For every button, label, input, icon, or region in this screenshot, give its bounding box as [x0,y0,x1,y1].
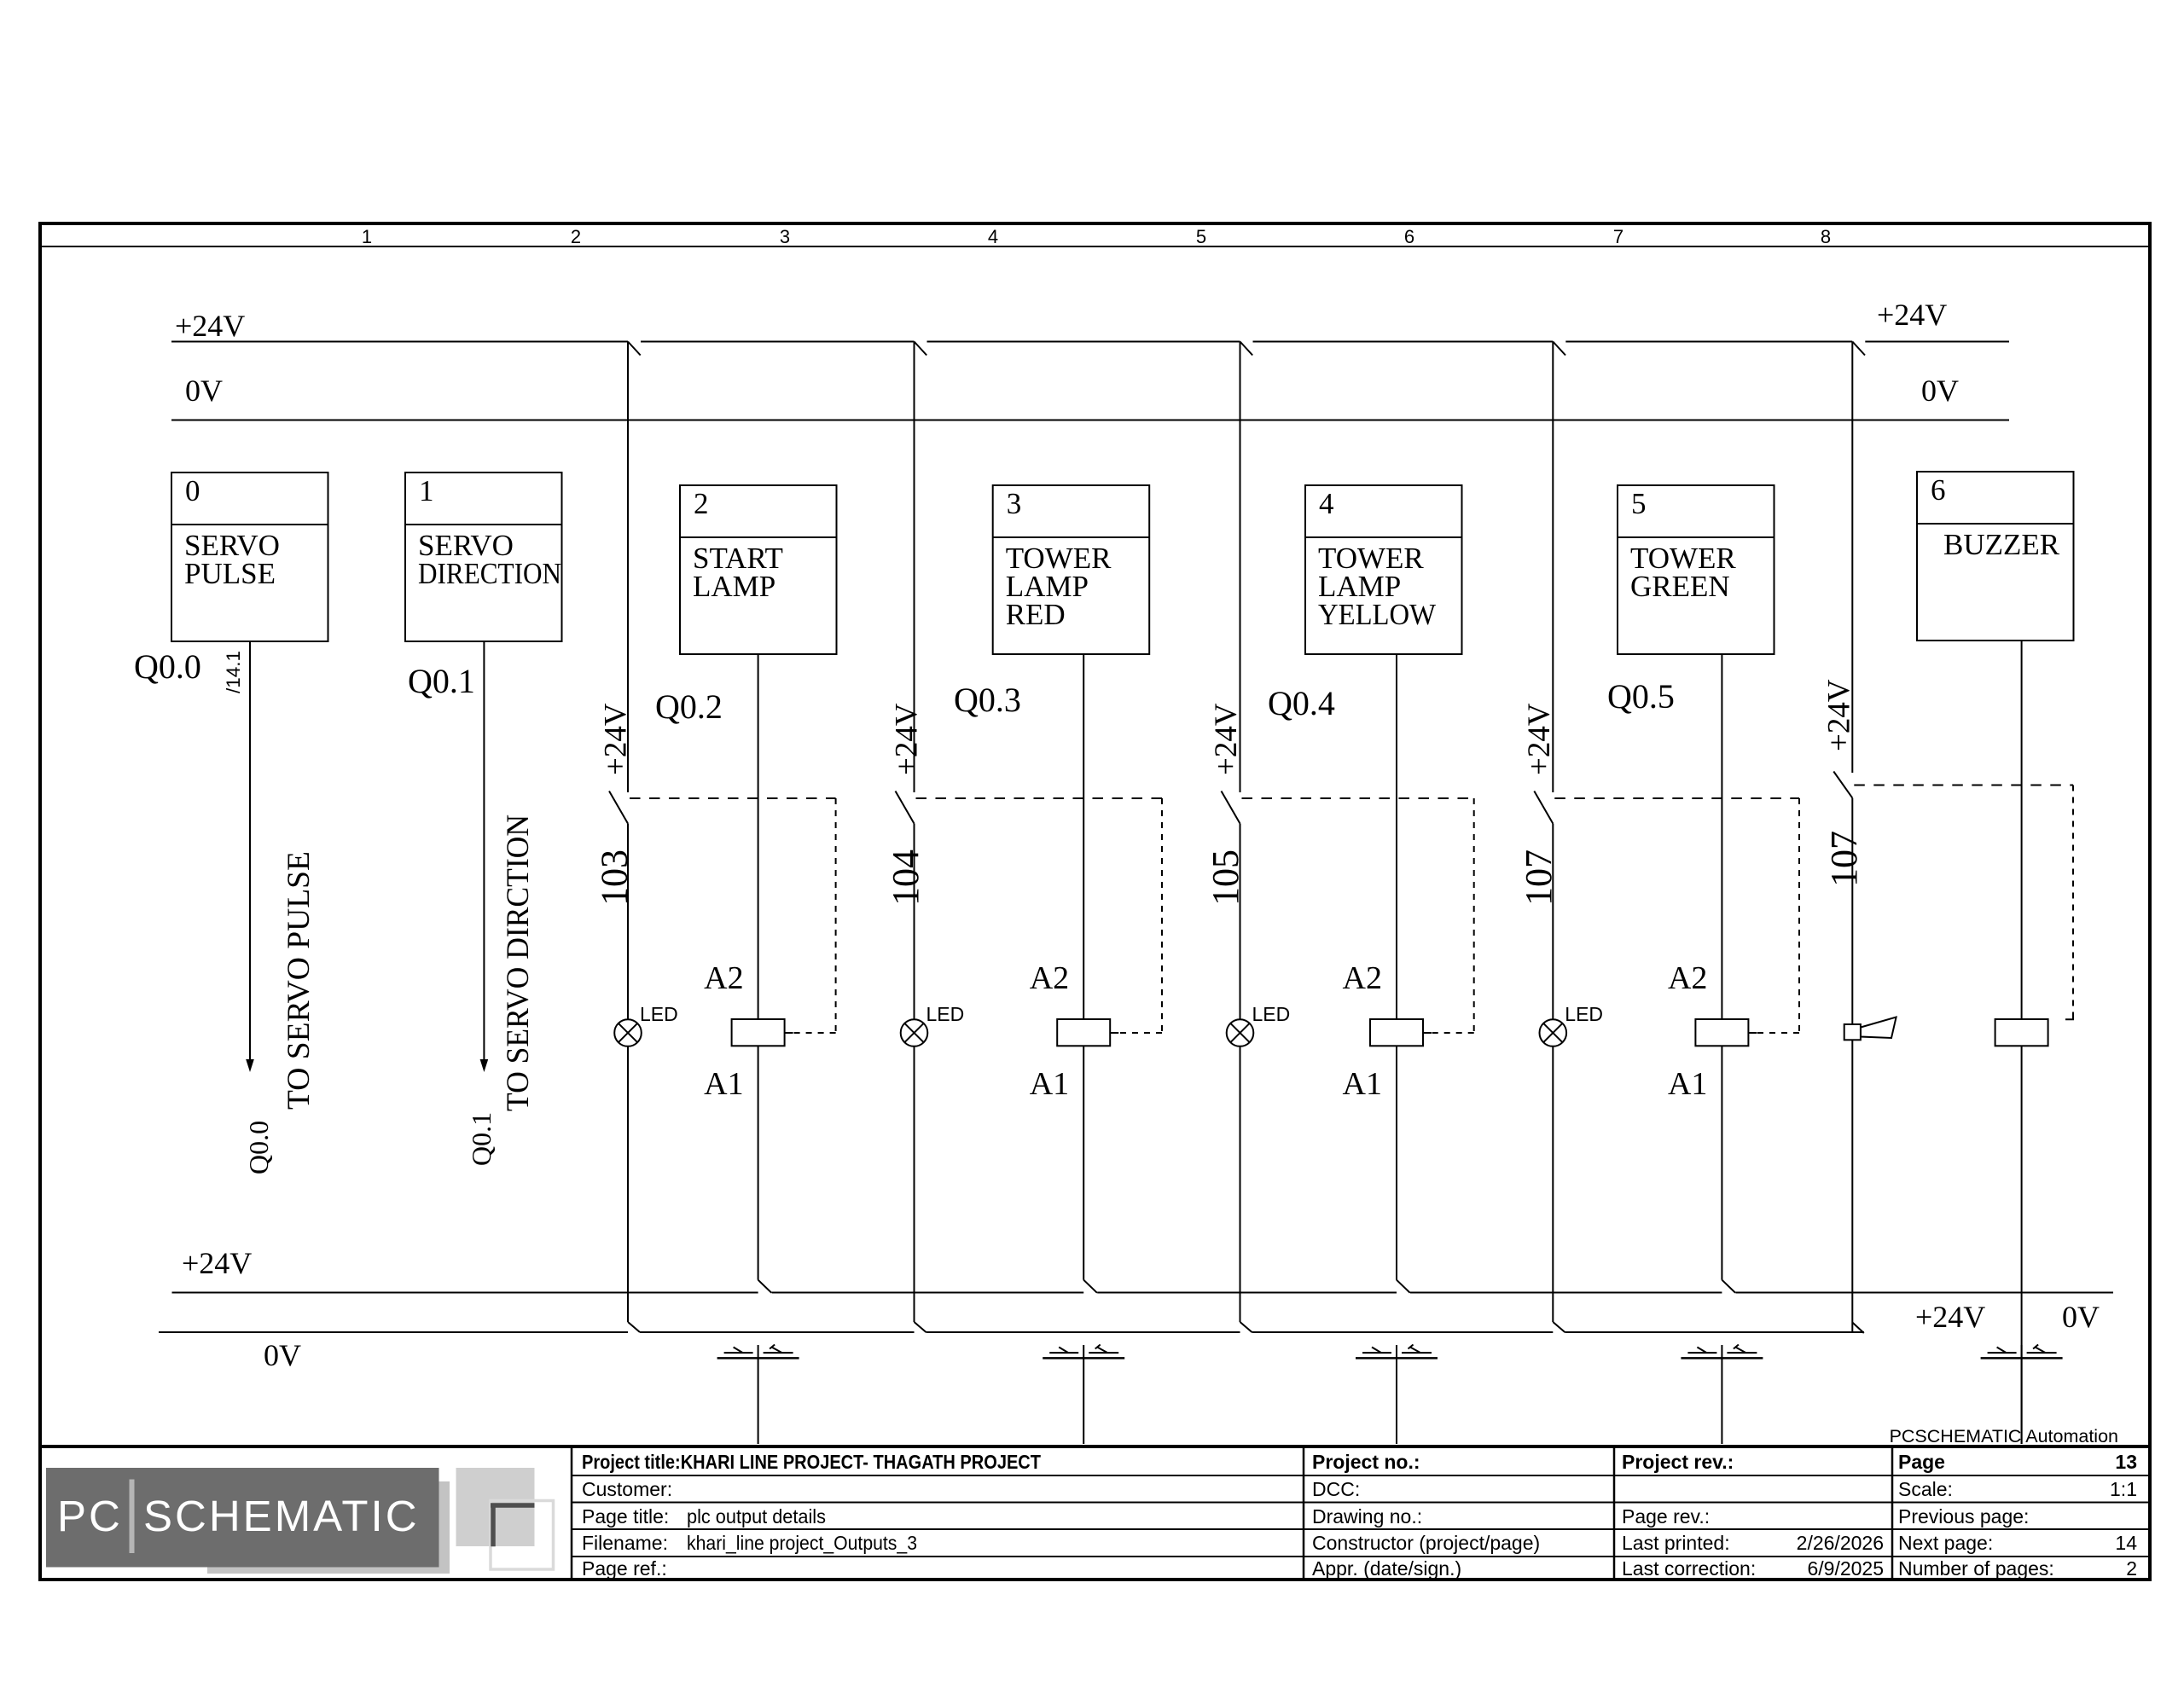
svg-text:/14.1: /14.1 [223,651,244,693]
svg-text:3: 3 [1007,487,1022,520]
svg-text:DCC:: DCC: [1312,1478,1360,1500]
svg-text:PCSCHEMATIC Automation: PCSCHEMATIC Automation [1890,1426,2118,1446]
svg-text:LED: LED [640,1003,678,1025]
svg-text:107: 107 [1823,831,1865,887]
svg-text:1: 1 [362,226,372,247]
svg-text:14: 14 [2115,1532,2137,1554]
svg-text:6: 6 [1931,473,1946,507]
svg-text:0V: 0V [264,1338,301,1372]
svg-text:Q0.4: Q0.4 [1268,684,1335,722]
svg-text:4: 4 [988,226,998,247]
svg-text:+24V: +24V [1209,703,1244,775]
svg-text:13: 13 [2115,1451,2137,1473]
svg-text:5: 5 [1631,487,1647,520]
svg-text:2: 2 [694,487,709,520]
svg-text:RED: RED [1006,598,1066,631]
svg-text:Q0.1: Q0.1 [408,662,475,700]
svg-text:TO SERVO DIRCTION: TO SERVO DIRCTION [501,815,536,1111]
svg-text:PULSE: PULSE [184,557,276,590]
svg-text:Q0.0: Q0.0 [243,1121,274,1174]
svg-text:A1: A1 [704,1066,743,1102]
svg-text:6: 6 [1404,226,1414,247]
svg-text:SCHEMATIC: SCHEMATIC [143,1492,420,1540]
svg-text:Page ref.:: Page ref.: [582,1557,667,1580]
svg-text:A1: A1 [1343,1066,1382,1102]
svg-text:Q0.2: Q0.2 [655,687,723,726]
svg-text:Scale:: Scale: [1898,1478,1953,1500]
svg-text:A1: A1 [1030,1066,1069,1102]
svg-text:2/26/2026: 2/26/2026 [1797,1532,1884,1554]
svg-text:plc output details: plc output details [687,1505,826,1528]
svg-text:DIRECTION: DIRECTION [418,557,561,590]
svg-text:1:1: 1:1 [2110,1478,2137,1500]
svg-text:Previous page:: Previous page: [1898,1505,2029,1528]
svg-text:Q0.5: Q0.5 [1607,677,1675,716]
svg-text:Appr. (date/sign.): Appr. (date/sign.) [1312,1557,1461,1580]
svg-text:0V: 0V [185,374,223,408]
svg-text:Constructor (project/page): Constructor (project/page) [1312,1532,1540,1554]
svg-text:107: 107 [1518,849,1560,906]
svg-text:Project rev.:: Project rev.: [1622,1451,1734,1473]
svg-text:Number of pages:: Number of pages: [1898,1557,2054,1580]
svg-text:104: 104 [885,849,926,906]
svg-text:LED: LED [926,1003,965,1025]
svg-text:A2: A2 [704,960,743,996]
svg-text:TO SERVO PULSE: TO SERVO PULSE [282,851,317,1110]
svg-text:BUZZER: BUZZER [1943,528,2060,561]
svg-text:Q0.3: Q0.3 [954,681,1021,719]
svg-text:GREEN: GREEN [1630,570,1730,603]
svg-text:Q0.1: Q0.1 [466,1112,497,1166]
svg-text:LED: LED [1565,1003,1603,1025]
svg-text:Page rev.:: Page rev.: [1622,1505,1710,1528]
svg-text:0: 0 [185,474,200,507]
svg-text:Customer:: Customer: [582,1478,672,1500]
svg-text:2: 2 [571,226,581,247]
svg-text:A2: A2 [1668,960,1707,996]
svg-text:Page title:: Page title: [582,1505,669,1528]
svg-text:+24V: +24V [175,309,245,343]
svg-text:LED: LED [1252,1003,1291,1025]
svg-text:0V: 0V [1921,374,1959,408]
svg-text:+24V: +24V [890,703,925,775]
svg-text:4: 4 [1319,487,1334,520]
svg-text:khari_line project_Outputs_3: khari_line project_Outputs_3 [687,1532,917,1554]
svg-text:Q0.0: Q0.0 [134,647,201,686]
svg-text:0V: 0V [2062,1300,2100,1334]
svg-text:Project title:KHARI LINE PROJE: Project title:KHARI LINE PROJECT- THAGAT… [582,1451,1041,1473]
svg-text:YELLOW: YELLOW [1318,598,1436,631]
svg-text:3: 3 [780,226,790,247]
svg-text:105: 105 [1205,849,1246,906]
svg-text:A1: A1 [1668,1066,1707,1102]
svg-text:LAMP: LAMP [693,570,775,603]
svg-text:Filename:: Filename: [582,1532,668,1554]
svg-text:6/9/2025: 6/9/2025 [1807,1557,1884,1580]
svg-text:7: 7 [1613,226,1623,247]
svg-text:103: 103 [594,849,636,906]
svg-text:Last printed:: Last printed: [1622,1532,1730,1554]
svg-text:5: 5 [1196,226,1206,247]
svg-text:1: 1 [419,474,434,507]
svg-text:+24V: +24V [182,1246,252,1280]
svg-text:Page: Page [1898,1451,1945,1473]
svg-text:+24V: +24V [1822,679,1857,751]
svg-text:Next page:: Next page: [1898,1532,1993,1554]
svg-text:8: 8 [1821,226,1831,247]
svg-text:+24V: +24V [599,703,634,775]
svg-text:Project no.:: Project no.: [1312,1451,1420,1473]
svg-text:A2: A2 [1343,960,1382,996]
svg-text:+24V: +24V [1522,703,1557,775]
svg-text:A2: A2 [1030,960,1069,996]
svg-text:Last correction:: Last correction: [1622,1557,1756,1580]
svg-text:+24V: +24V [1915,1300,1985,1334]
svg-text:2: 2 [2126,1557,2137,1580]
svg-text:PC: PC [57,1492,123,1540]
svg-text:Drawing no.:: Drawing no.: [1312,1505,1422,1528]
svg-text:+24V: +24V [1877,298,1947,332]
